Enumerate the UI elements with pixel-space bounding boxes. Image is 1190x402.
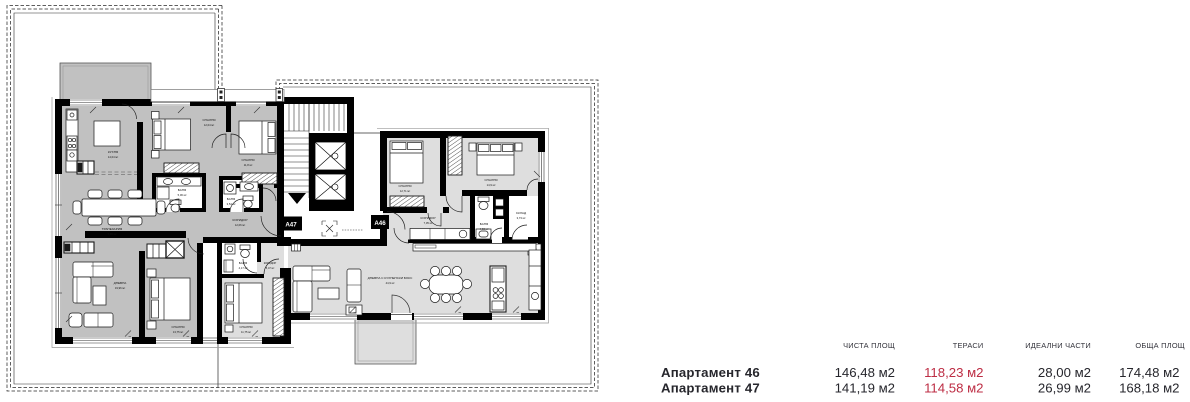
- svg-text:14,9 м²: 14,9 м²: [487, 183, 496, 187]
- svg-text:СПАЛНЯ: СПАЛНЯ: [398, 184, 411, 188]
- svg-text:141,19 м2: 141,19 м2: [835, 381, 895, 396]
- svg-text:БАНЯ: БАНЯ: [178, 188, 187, 192]
- svg-text:3,73 м²: 3,73 м²: [517, 216, 526, 220]
- svg-text:ИДЕАЛНИ ЧАСТИ: ИДЕАЛНИ ЧАСТИ: [1025, 341, 1091, 350]
- svg-text:БАНЯ: БАНЯ: [480, 222, 489, 226]
- svg-text:КОРИДОР: КОРИДОР: [420, 216, 435, 220]
- svg-text:26,99 м2: 26,99 м2: [1038, 381, 1091, 396]
- svg-text:A46: A46: [374, 220, 386, 227]
- svg-text:4,63 м²: 4,63 м²: [480, 227, 489, 231]
- svg-text:168,18 м2: 168,18 м2: [1119, 381, 1179, 396]
- svg-text:СКЛАД: СКЛАД: [516, 211, 527, 215]
- svg-text:4,17 м²: 4,17 м²: [239, 266, 248, 270]
- svg-text:СПАЛНЯ: СПАЛНЯ: [171, 325, 184, 329]
- svg-text:ЧИСТА ПЛОЩ: ЧИСТА ПЛОЩ: [843, 341, 895, 350]
- svg-text:12,06 м²: 12,06 м²: [235, 223, 245, 227]
- svg-text:КОРИДОР: КОРИДОР: [264, 261, 277, 265]
- svg-text:28,00 м2: 28,00 м2: [1038, 365, 1091, 380]
- svg-text:174,48 м2: 174,48 м2: [1119, 365, 1179, 380]
- svg-text:12,71 м²: 12,71 м²: [400, 189, 410, 193]
- svg-text:114,58 м2: 114,58 м2: [924, 381, 983, 396]
- svg-text:146,48 м2: 146,48 м2: [835, 365, 895, 380]
- svg-text:ДНЕВНА: ДНЕВНА: [114, 281, 128, 285]
- svg-text:12,04 м²: 12,04 м²: [204, 123, 214, 127]
- svg-text:СПАЛНЯ: СПАЛНЯ: [202, 118, 215, 122]
- svg-text:Апартамент 47: Апартамент 47: [661, 381, 760, 396]
- svg-text:ДНЕВНА С КУХНЕНСКИ БОКС: ДНЕВНА С КУХНЕНСКИ БОКС: [368, 276, 413, 280]
- svg-text:СПАЛНЯ: СПАЛНЯ: [484, 178, 497, 182]
- svg-text:11,75 м²: 11,75 м²: [241, 330, 251, 334]
- svg-text:ОБЩА ПЛОЩ: ОБЩА ПЛОЩ: [1135, 341, 1185, 350]
- svg-text:5,47 м²: 5,47 м²: [266, 266, 275, 270]
- svg-text:3,54 м²: 3,54 м²: [227, 202, 236, 206]
- svg-text:БАНЯ: БАНЯ: [239, 261, 248, 265]
- svg-text:7,05 м²: 7,05 м²: [424, 221, 433, 225]
- svg-text:ТЕРАСИ: ТЕРАСИ: [953, 341, 984, 350]
- svg-text:БАНЯ: БАНЯ: [227, 197, 236, 201]
- svg-text:КУХНЯ: КУХНЯ: [108, 150, 118, 154]
- svg-text:118,23 м2: 118,23 м2: [924, 365, 983, 380]
- svg-text:КОРИДОР: КОРИДОР: [232, 218, 247, 222]
- svg-text:7,65 м²: 7,65 м²: [108, 232, 117, 236]
- svg-text:ТРАПЕЗАРИЯ: ТРАПЕЗАРИЯ: [102, 227, 122, 231]
- svg-text:СПАЛНЯ: СПАЛНЯ: [239, 325, 252, 329]
- svg-text:A47: A47: [285, 222, 297, 229]
- svg-text:14,04 м²: 14,04 м²: [108, 155, 118, 159]
- svg-text:19,96 м²: 19,96 м²: [115, 286, 125, 290]
- svg-text:11,8 м²: 11,8 м²: [244, 163, 253, 167]
- svg-text:44,9 м²: 44,9 м²: [386, 281, 395, 285]
- svg-text:13,75 м²: 13,75 м²: [173, 330, 183, 334]
- svg-text:СПАЛНЯ: СПАЛНЯ: [241, 158, 254, 162]
- svg-text:5,06 м²: 5,06 м²: [178, 193, 187, 197]
- svg-text:Апартамент 46: Апартамент 46: [661, 365, 760, 380]
